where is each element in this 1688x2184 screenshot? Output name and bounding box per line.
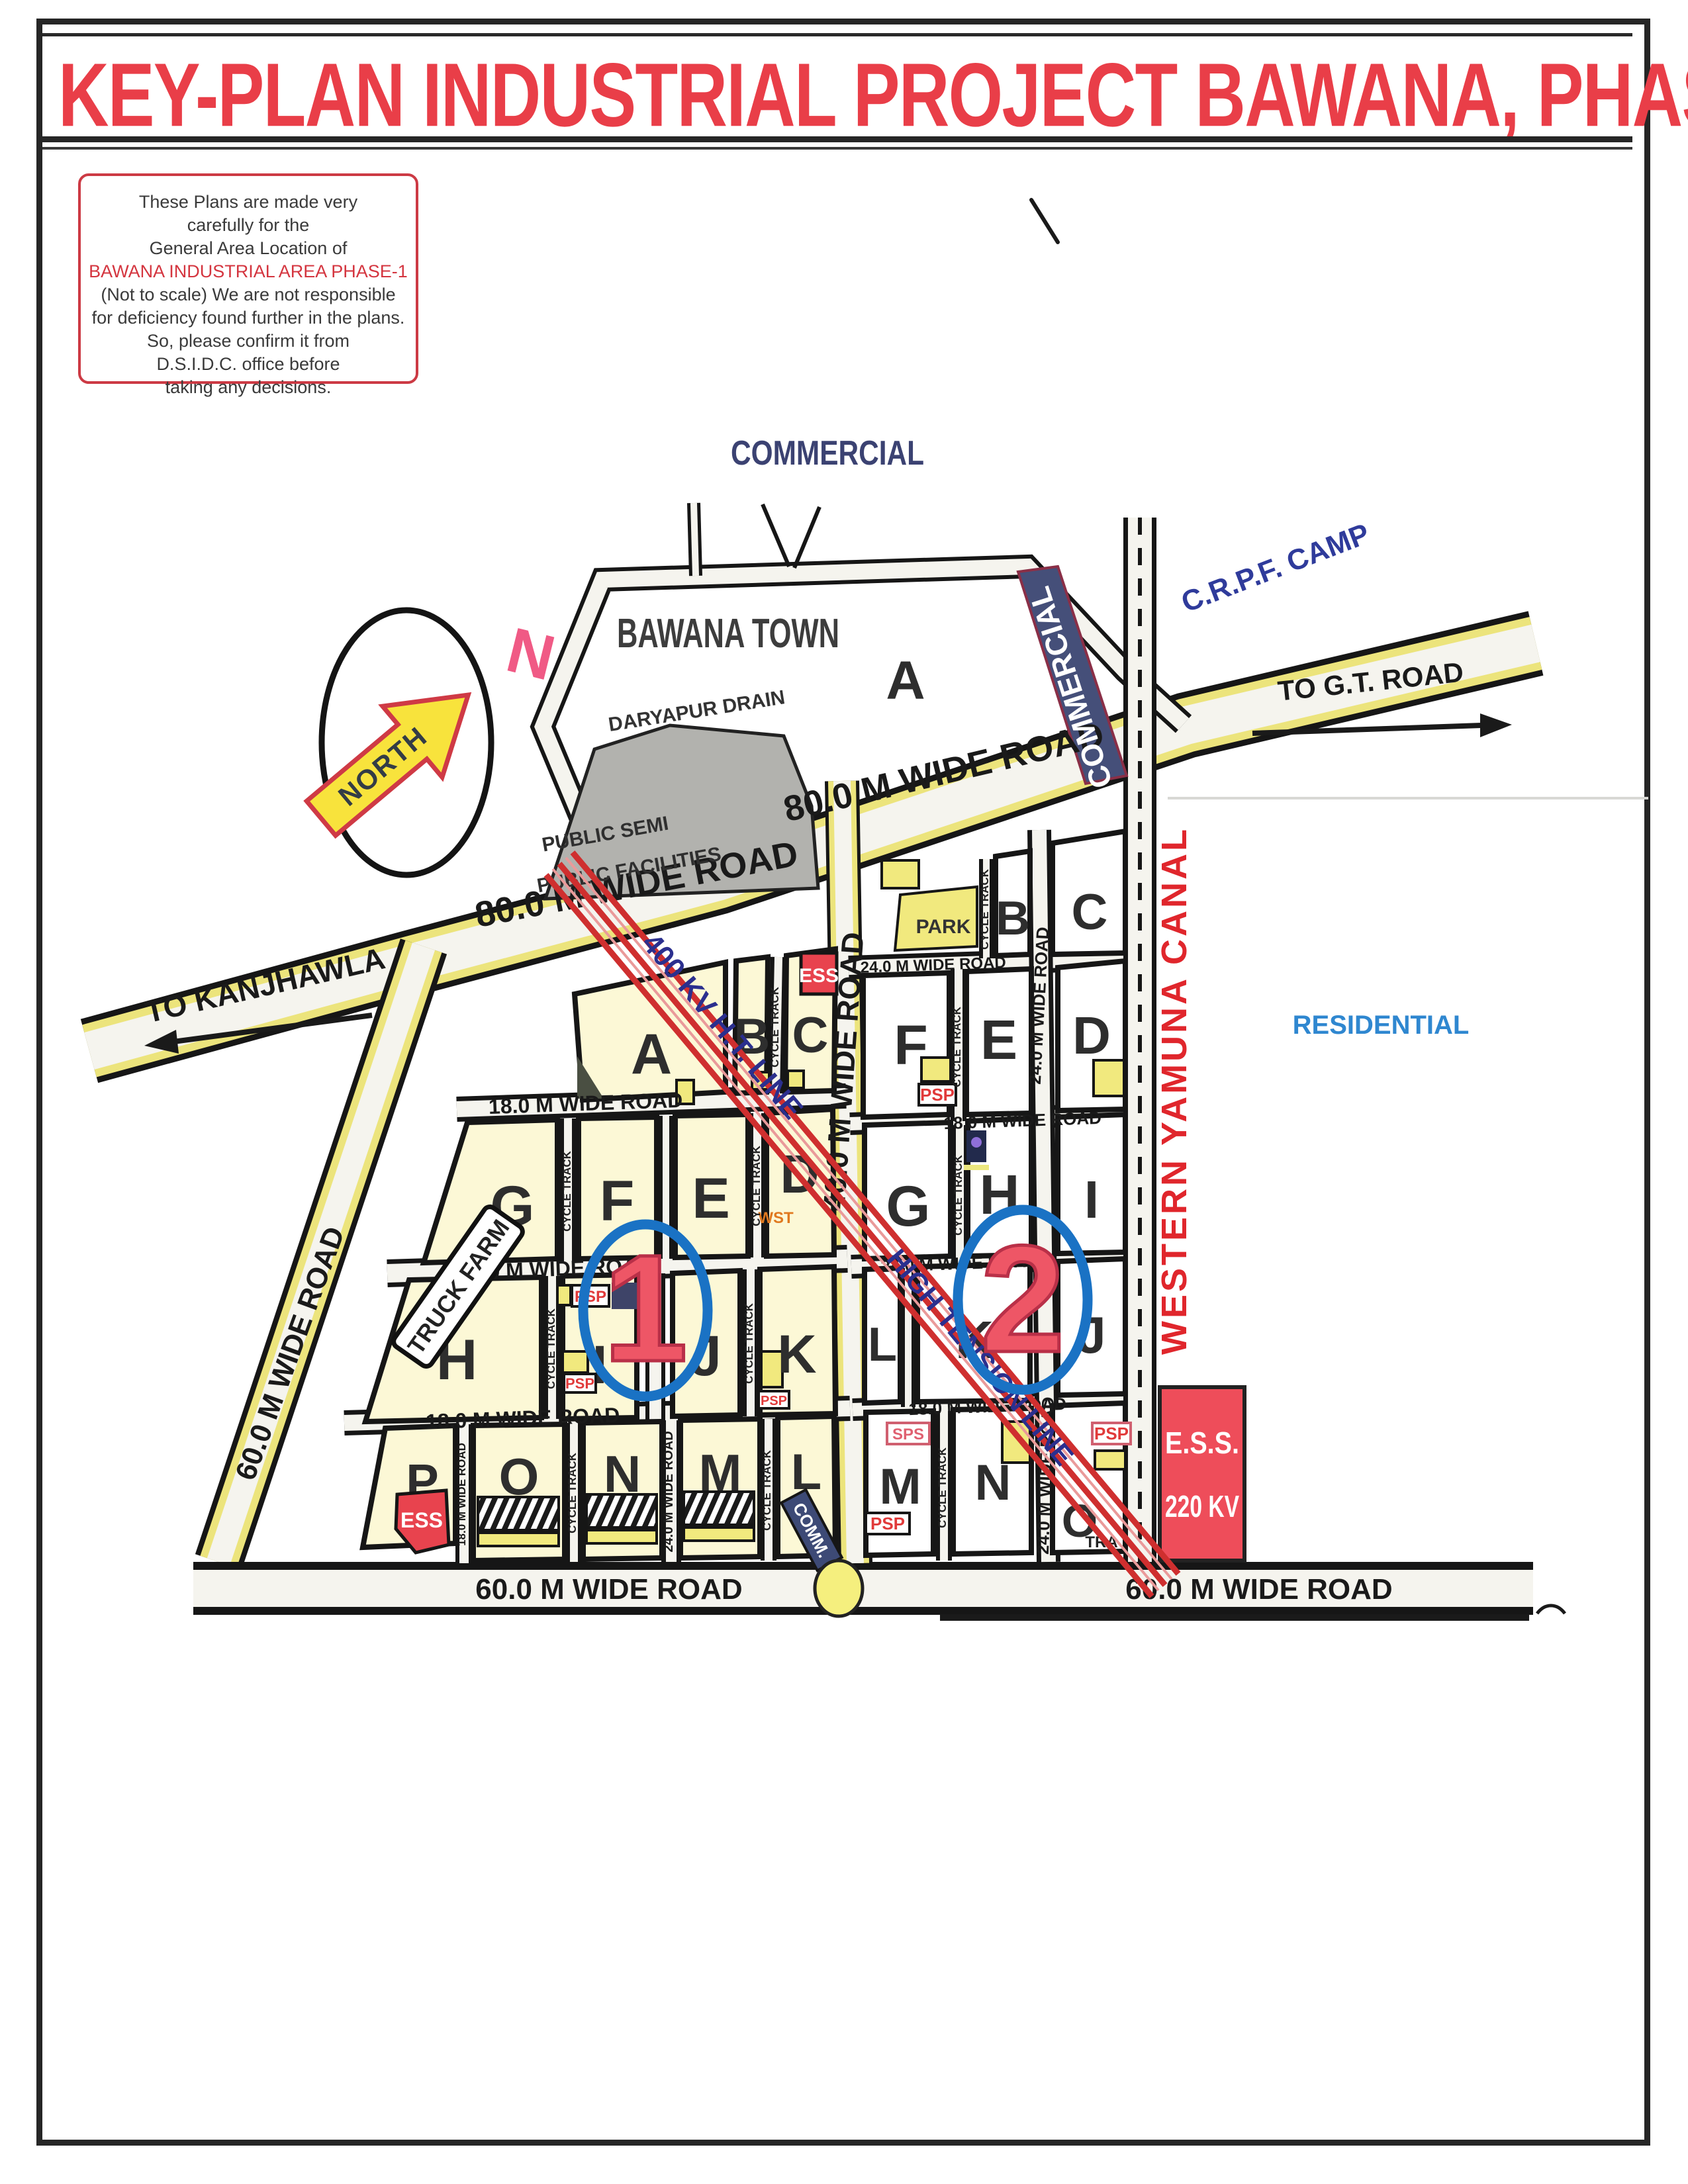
wst-marker: WST bbox=[758, 1209, 794, 1227]
sector-letter: N bbox=[604, 1445, 641, 1503]
cycle-track-label: CYCLE TRACK bbox=[750, 1145, 763, 1226]
crpf-camp-label: C.R.P.F. CAMP bbox=[1177, 518, 1374, 619]
psp-marker: PSP bbox=[870, 1514, 905, 1533]
cycle-track-label: CYCLE TRACK bbox=[769, 986, 781, 1068]
scanned-key-plan-page: KEY-PLAN INDUSTRIAL PROJECT BAWANA, PHAS… bbox=[0, 0, 1688, 2184]
road-label: 60.0 M WIDE ROAD bbox=[475, 1573, 742, 1606]
sector-letter: D bbox=[1072, 1006, 1111, 1065]
ess-220-line2: 220 KV bbox=[1165, 1489, 1239, 1524]
ess-220kv-substation: E.S.S. 220 KV bbox=[1160, 1387, 1244, 1561]
zone-number: 1 bbox=[603, 1223, 688, 1393]
sector-letter: B bbox=[996, 892, 1030, 945]
road-label: 60.0 M WIDE ROAD bbox=[229, 1222, 351, 1484]
sector-letter: C bbox=[792, 1007, 829, 1064]
sector-letter-a-town: A bbox=[886, 651, 925, 711]
psp-marker: PSP bbox=[920, 1085, 955, 1105]
cycle-track-label: CYCLE TRACK bbox=[951, 1006, 963, 1087]
yellow-pocket bbox=[1095, 1451, 1125, 1469]
sector-letter: A bbox=[631, 1023, 672, 1086]
sector-letter: O bbox=[499, 1447, 539, 1506]
sector-letter: L bbox=[868, 1318, 897, 1371]
canal-label: WESTERN YAMUNA CANAL bbox=[1154, 827, 1194, 1355]
sector-letter: I bbox=[1084, 1170, 1099, 1229]
sector-letter: N bbox=[975, 1455, 1011, 1511]
sector-letter: M bbox=[879, 1459, 921, 1515]
sps-marker: SPS bbox=[892, 1426, 924, 1443]
yellow-pocket bbox=[557, 1285, 571, 1305]
cycle-track-label: CYCLE TRACK bbox=[936, 1447, 949, 1528]
cycle-track-label: CYCLE TRACK bbox=[978, 868, 991, 950]
shrine-icon-dot bbox=[971, 1137, 982, 1148]
cycle-track-label: CYCLE TRACK bbox=[545, 1308, 557, 1389]
ess-220-line1: E.S.S. bbox=[1165, 1426, 1239, 1460]
psp-marker: PSP bbox=[565, 1375, 594, 1392]
scan-mark bbox=[1031, 200, 1058, 242]
north-compass: NORTH N bbox=[291, 610, 561, 875]
map-canvas: A B C G F E D H I J K P O N M L B C F E … bbox=[0, 0, 1688, 2184]
cycle-track-label: CYCLE TRACK bbox=[743, 1302, 755, 1384]
yellow-pocket bbox=[563, 1351, 588, 1373]
arrow-head-right bbox=[1480, 713, 1512, 737]
bawana-town-label: BAWANA TOWN bbox=[617, 611, 839, 657]
psp-marker: PSP bbox=[1094, 1424, 1129, 1443]
sector-letter: G bbox=[886, 1175, 931, 1238]
residential-label: RESIDENTIAL bbox=[1293, 1011, 1470, 1040]
yellow-pocket bbox=[921, 1058, 951, 1081]
yellow-pocket bbox=[882, 860, 919, 888]
park-label: PARK bbox=[916, 916, 971, 938]
road-label: 24.0 M WIDE ROAD bbox=[661, 1431, 676, 1552]
sector-letter: E bbox=[692, 1167, 729, 1230]
cycle-track-label: CYCLE TRACK bbox=[566, 1452, 579, 1533]
yellow-pocket bbox=[1094, 1060, 1124, 1096]
cycle-track-label: CYCLE TRACK bbox=[952, 1154, 964, 1236]
zone-number: 2 bbox=[980, 1214, 1065, 1384]
shrine-icon-base bbox=[964, 1165, 989, 1170]
sector-letter: C bbox=[1072, 884, 1108, 940]
scan-mark bbox=[1537, 1606, 1565, 1614]
commercial-top-label: COMMERCIAL bbox=[731, 434, 924, 473]
psp-marker: PSP bbox=[761, 1394, 787, 1408]
road-label: 18.0 M WIDE ROAD bbox=[455, 1443, 468, 1546]
road-label: 60.0 M WIDE ROAD bbox=[1125, 1573, 1392, 1606]
sector-letter: M bbox=[699, 1443, 742, 1502]
cycle-track-label: CYCLE TRACK bbox=[561, 1150, 573, 1232]
sector-letter: K bbox=[777, 1324, 816, 1385]
roundabout bbox=[815, 1561, 863, 1616]
ess-label: ESS bbox=[400, 1508, 443, 1532]
sector-letter: E bbox=[980, 1009, 1017, 1071]
cycle-track-label: CYCLE TRACK bbox=[761, 1449, 773, 1531]
